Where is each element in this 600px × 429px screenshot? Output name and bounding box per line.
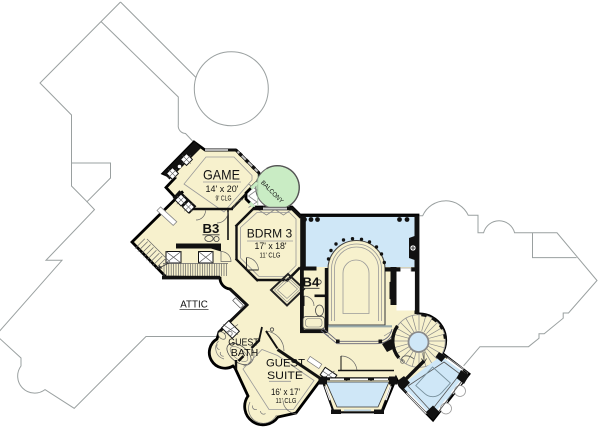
svg-text:16' x 17': 16' x 17': [271, 387, 300, 397]
svg-text:11' CLG: 11' CLG: [276, 398, 297, 405]
svg-text:BDRM 3: BDRM 3: [247, 227, 293, 241]
svg-text:11' CLG: 11' CLG: [260, 253, 281, 260]
svg-text:14' x 20': 14' x 20': [206, 184, 239, 195]
svg-text:SUITE: SUITE: [267, 370, 303, 382]
svg-text:B4: B4: [303, 275, 321, 290]
svg-text:17' x 18': 17' x 18': [255, 241, 287, 252]
svg-text:GUEST: GUEST: [266, 357, 305, 369]
svg-text:ATTIC: ATTIC: [180, 299, 208, 310]
svg-text:GAME: GAME: [203, 167, 240, 183]
svg-text:BATH: BATH: [231, 347, 259, 359]
svg-text:9' CLG: 9' CLG: [216, 196, 232, 203]
svg-text:B3: B3: [203, 221, 220, 236]
